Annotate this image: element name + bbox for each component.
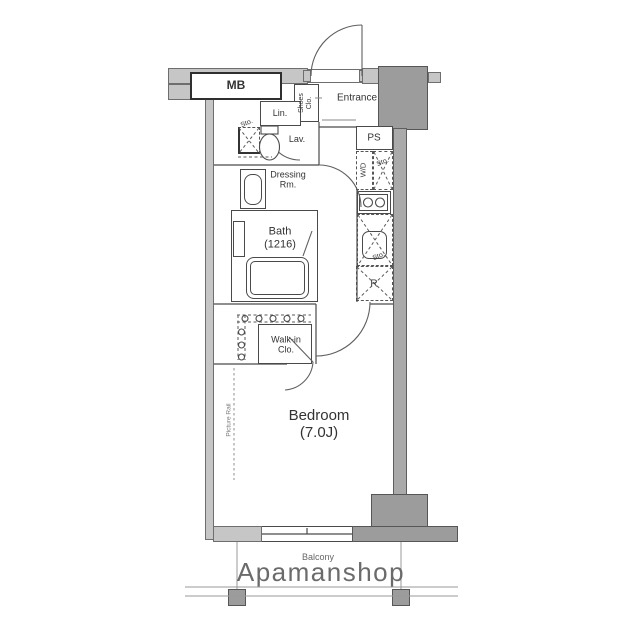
label-walkin-line2: Clo. [271,345,301,355]
label-linen: Lin. [273,108,288,118]
balcony-post-left [228,589,246,606]
balcony-post-right [392,589,410,606]
floorplan-canvas: MB Shoes Clo. Entrance Lin. Sto. Lav. PS… [0,0,640,640]
watermark-apamanshop: Apamanshop [237,558,405,588]
label-shoes-closet-line1: Shoes [298,93,306,113]
label-bedroom: Bedroom (7.0J) [289,407,350,442]
washbasin-bowl [244,174,262,205]
label-entrance: Entrance [337,92,377,104]
label-walkin-line1: Walk-in [271,335,301,345]
wall-right [393,128,407,500]
stove-burner-panel [359,194,388,211]
label-bedroom-line1: Bedroom [289,407,350,424]
entrance-door-threshold [308,69,362,83]
wall-bottom-band-right [352,526,458,542]
bath-counter [233,221,245,257]
label-walkin-closet: Walk-in Clo. [271,335,301,356]
label-lavatory: Lav. [289,134,305,144]
hall-storage-box [238,127,260,154]
toilet-icon [260,126,280,160]
label-bath-line2: (1216) [264,238,296,251]
wall-bottom-band-left [213,526,262,542]
label-bath-line1: Bath [264,225,296,238]
bedroom-door-swing [316,302,370,356]
wall-left [205,84,214,540]
balcony-window [262,526,352,542]
label-bath: Bath (1216) [264,225,296,250]
label-pipe-space: PS [367,132,380,144]
label-washer-dryer: W/D [360,163,369,178]
label-dressing-line2: Rm. [270,180,306,190]
linework-layer [0,0,640,640]
bathtub [246,257,309,299]
dressing-door-swing [319,165,361,207]
label-meter-box: MB [227,79,246,93]
label-shoes-closet-line2: Clo. [306,93,314,113]
label-shoes-closet: Shoes Clo. [298,93,314,113]
laundry-storage-box [373,151,393,190]
wall-tab-right [428,72,441,83]
door-jamb-left [303,70,311,82]
label-bedroom-line2: (7.0J) [289,424,350,441]
bathtub-inner [250,261,305,295]
column-top-right [378,66,428,130]
label-refrigerator: R [370,278,377,290]
label-dressing-line1: Dressing [270,170,306,180]
label-dressing-room: Dressing Rm. [270,170,306,191]
label-picture-rail: Picture Rail [225,403,232,436]
